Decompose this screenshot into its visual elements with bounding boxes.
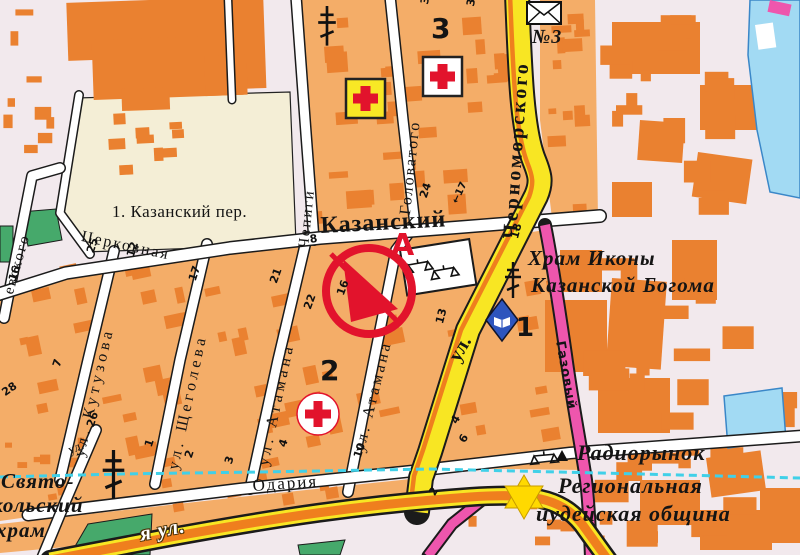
house-number: 8 — [309, 233, 318, 245]
pharmacy-cross-icon — [346, 79, 385, 118]
label-kazansky-per: 1. Казанский пер. — [112, 203, 247, 220]
hospital-cross-icon — [423, 57, 462, 96]
label-odariya: Одария — [252, 472, 319, 494]
open-square — [62, 92, 296, 252]
label-post-no: №3 — [532, 27, 562, 47]
label-hram-ikony-1: Храм Иконы — [528, 248, 656, 269]
post-office-icon — [527, 2, 561, 24]
district-number-2: 2 — [320, 357, 339, 385]
district-number-1: 1 — [516, 315, 534, 341]
label-iudeyskaya: иудейская община — [536, 503, 731, 525]
label-radiorynok: Радиорынок — [577, 442, 705, 464]
label-regionalnaya: Региональная — [558, 475, 703, 497]
hospital-cross-round-icon — [297, 393, 339, 435]
map-canvas[interactable]: 1. Казанский пер. Казанский Церковная Че… — [0, 0, 800, 555]
label-svyato-1: Свято- — [1, 471, 74, 492]
label-svyato-2: кольский — [0, 495, 84, 516]
label-kazansky-street: Казанский — [320, 207, 447, 238]
marker-letter: А — [391, 231, 414, 261]
district-number-3: 3 — [431, 15, 450, 43]
label-svyato-3: храм — [0, 520, 46, 541]
label-hram-ikony-2: Казанской Богома — [531, 275, 715, 296]
